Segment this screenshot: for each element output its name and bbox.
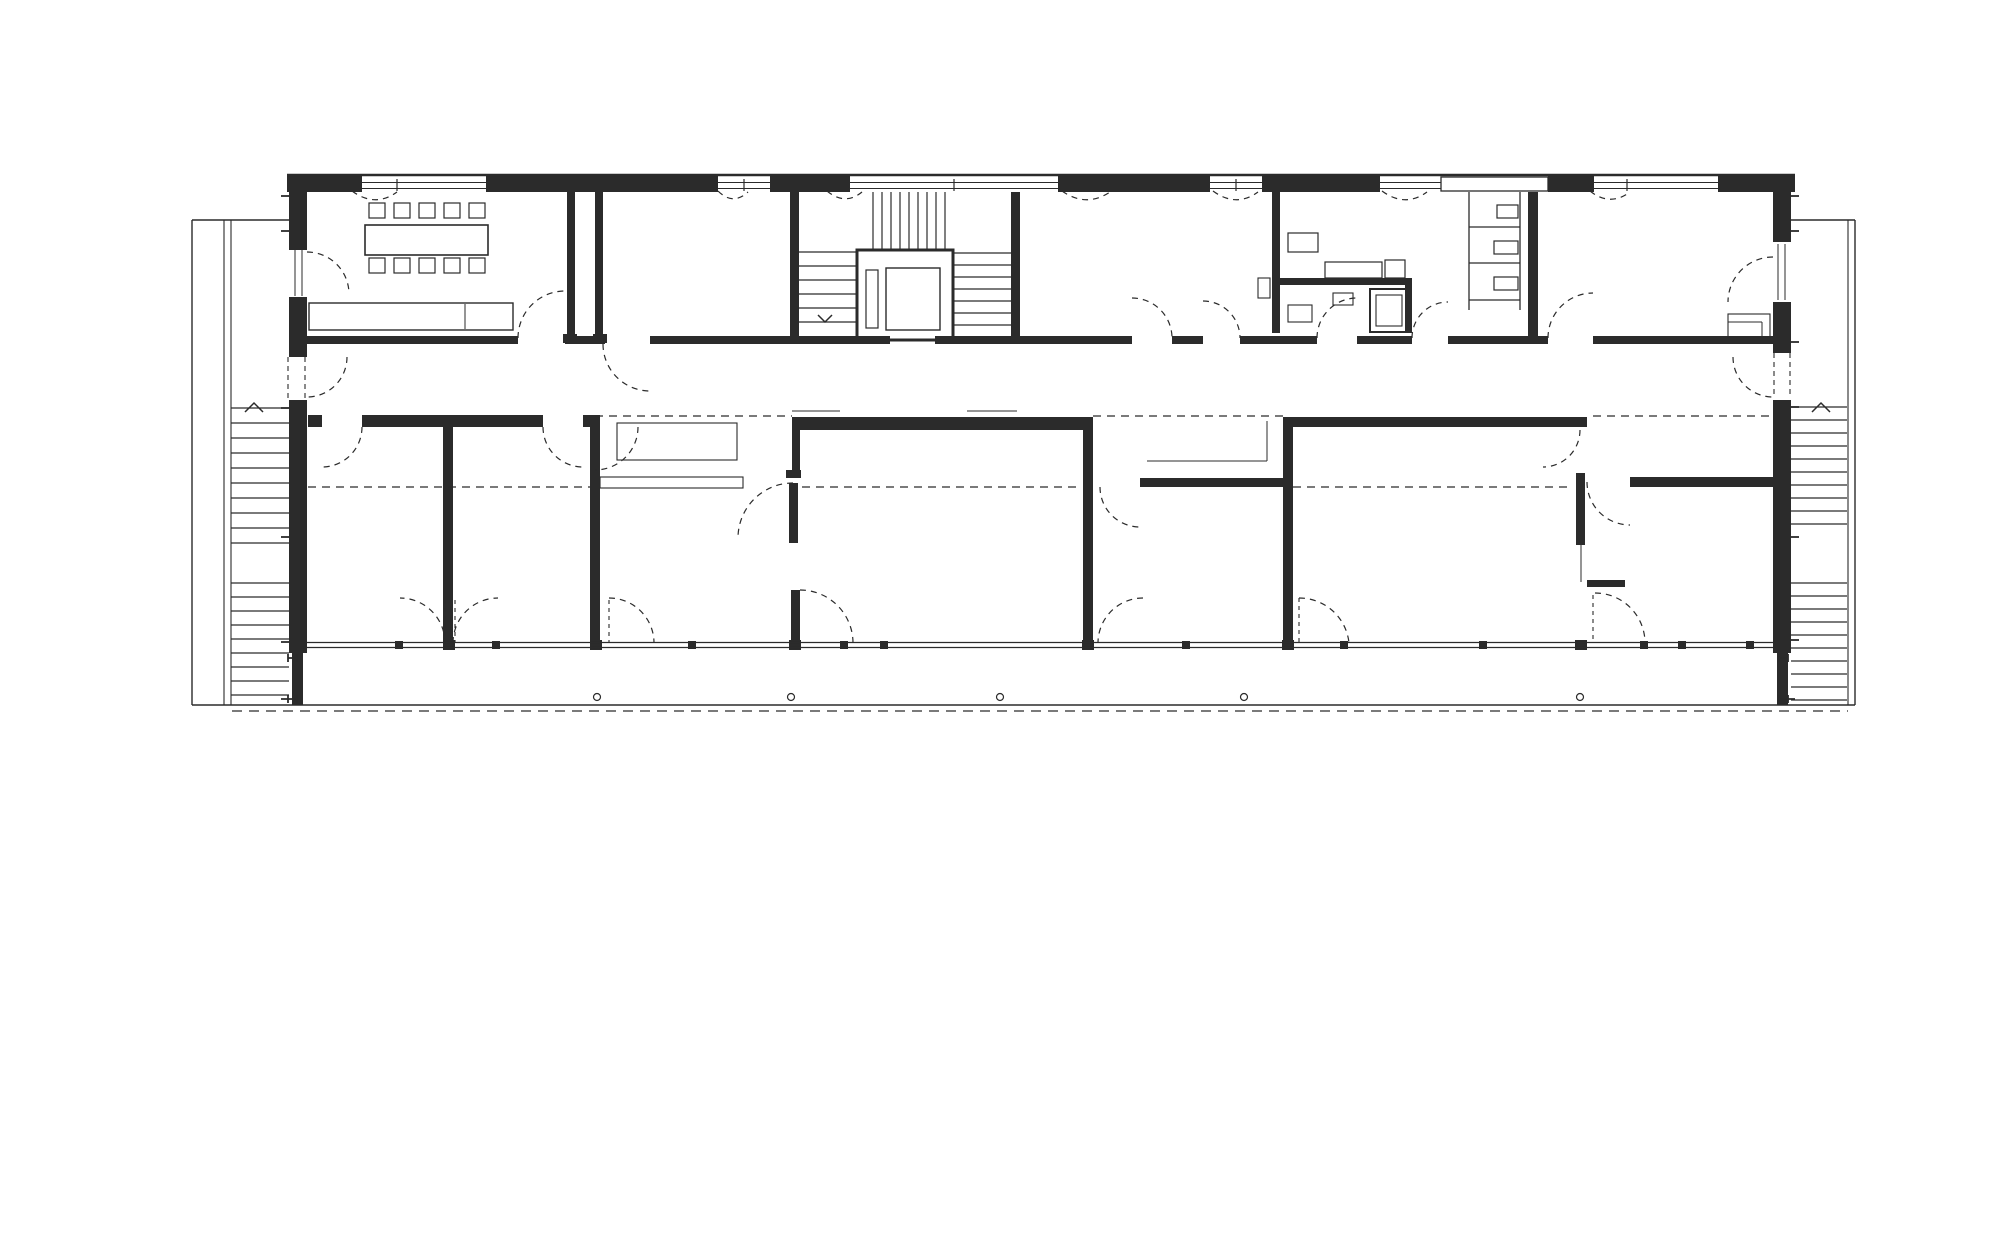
window-vent-arc [718,191,748,199]
elevator-shaft [857,250,953,340]
wall-roomF-west [1283,417,1293,643]
counter [1385,260,1405,278]
chair [444,258,460,273]
door-arc-roomF-bottom [1299,598,1349,643]
chair [369,258,385,273]
chair [394,203,410,218]
wall-left-main [289,400,307,653]
wall-corridor-north [1172,336,1203,344]
chair [419,203,435,218]
door-leaf [791,590,800,643]
wall-stub [1543,417,1555,427]
terrace-column [1577,694,1584,701]
door-arc-roomG-bottom [1595,593,1645,643]
wall-roomG-stub2 [1587,580,1625,587]
door-arc-roomB [543,427,583,467]
floor-plan-drawing [0,0,2000,1250]
chair [469,258,485,273]
shelf [1288,305,1312,322]
toilet [1497,205,1518,218]
wall-duct-west [567,192,575,338]
door-arc-corridor-balcony-right [1733,357,1773,397]
door-leaf [1576,473,1585,545]
wall-right-mid [1773,302,1791,353]
door-arc-office-right [1548,293,1593,338]
wall-roomD-north [792,417,1093,430]
window-vent-arc [1590,191,1630,199]
wall-stub [308,415,322,427]
wall-corridor-north [307,336,518,344]
wall-wc-east [1528,192,1538,343]
terrace-column [1241,694,1248,701]
terrace-column [788,694,795,701]
elevator-car [886,268,940,330]
door-arc-roomD-west [738,483,793,538]
wall-corridor-north [565,336,605,344]
wall-corridor-north [1020,336,1132,344]
door-arc-conference-balcony [307,252,349,294]
door-arc-roomD-bottom [800,590,853,643]
door-arc-french-right [453,598,498,643]
wall-stair-core-east [1011,192,1020,344]
facade-pier [1718,176,1795,192]
wall-copy-west [1272,192,1280,333]
toilet [1494,277,1518,290]
shelf-corner [1728,314,1770,337]
door-jamb [786,470,801,478]
wall-corridor-north [1240,336,1317,344]
wall-roomD-west [792,417,800,472]
toilet [1494,241,1518,254]
facade-pier [770,176,850,192]
wall-copy-south [1280,278,1412,285]
window-vent-arc [1213,191,1258,200]
facade-mullion-post [1282,640,1294,650]
elevator-door-panel [866,270,878,328]
floor-plan-sheet [0,0,2000,1250]
door-arc-roomF-ne [1543,430,1580,467]
door-arc-roomA [322,427,362,467]
door-arc-office2 [603,344,650,391]
facade-mullion-post [789,640,801,650]
facade-pier [1262,176,1380,192]
wall-left-upper [289,192,307,250]
door-arc-wc [1412,302,1448,338]
wall-roomE-stub [1140,478,1283,487]
wall-corridor-north [1448,336,1548,344]
elevator-arrow-down [818,315,832,322]
terrace-column [997,694,1004,701]
wall-duct-east [595,192,603,338]
wall-roomG-stub [1630,477,1773,487]
door-arc-conference [518,291,565,338]
wall-partition-DE [1083,417,1093,643]
door-arc-window-right [1728,257,1773,302]
wall-stair-core-west [790,192,799,344]
door-arc-copyroom [1317,298,1357,338]
window-vent-arc [827,191,862,199]
door-arc-roomE-bottom [1098,598,1143,643]
chair [369,203,385,218]
door-arc-office3-a [1132,298,1172,338]
door-arc-corridor-balcony-left [307,357,347,397]
facade-pier [1548,176,1594,192]
chair [444,203,460,218]
facade-mullion-post [590,640,602,650]
terrace-column [594,694,601,701]
wall-partition-BC [590,415,600,643]
door-arc-office3-b [1203,301,1240,338]
window-panel-wc [1441,177,1548,191]
conference-table [365,225,488,255]
door-arc-roomC-bottom [609,598,654,643]
window-vent-arc [1062,191,1110,200]
wall-left-mid [289,297,307,357]
facade-pier [287,176,362,192]
facade-mullion-post [1575,640,1587,650]
window-vent-arc [1382,191,1427,200]
copier-inner [1376,295,1402,326]
kitchen-counter [600,477,743,488]
door-leaf [789,483,798,543]
wall-corridor-north [1357,336,1412,344]
door-arc-roomE-top [1100,487,1140,527]
facade-pier [1058,176,1210,192]
facade-mullion-post [1082,640,1094,650]
wall-right-main [1773,400,1791,653]
sideboard [309,303,513,330]
wall-corridor-north [650,336,890,344]
wall-right-upper [1773,192,1791,242]
wall-roomF-north [1283,417,1587,427]
wall-roomAB-north [362,415,543,427]
facade-pier [486,176,718,192]
chair [469,203,485,218]
window-vent-arc [352,191,397,200]
counter [1325,262,1382,278]
desk [1288,233,1318,252]
door-arc-french-left [400,598,445,643]
chair [394,258,410,273]
door-arc-roomG-top [1587,482,1630,525]
chair [419,258,435,273]
radiator [1258,278,1270,298]
